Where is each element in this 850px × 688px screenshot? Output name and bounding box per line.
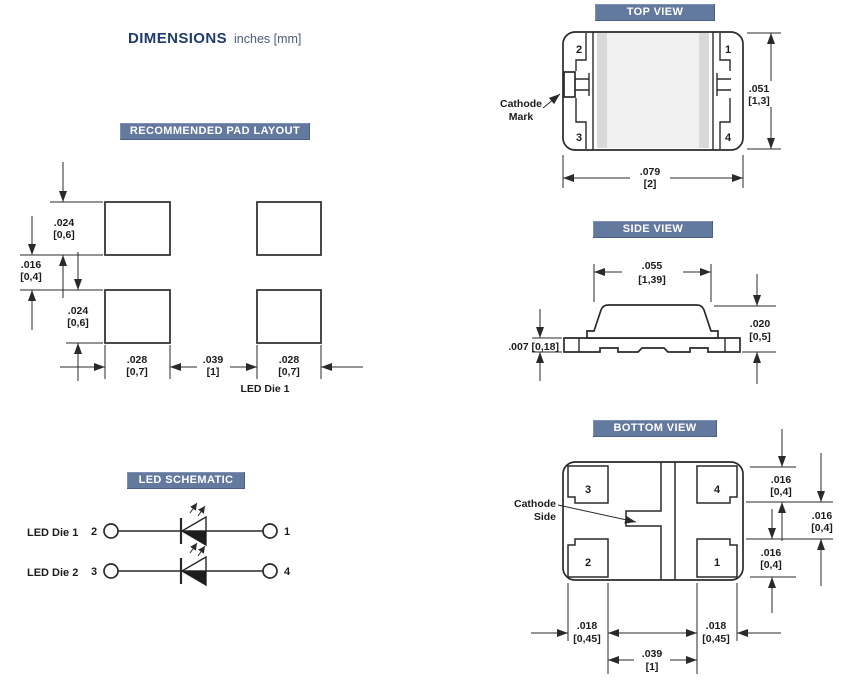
schematic-row-die1: LED Die 1 2 1: [27, 503, 290, 545]
bottom-view-pin-2: 2: [585, 557, 591, 569]
schematic-die2-left-pin: 3: [91, 566, 97, 578]
bottom-view-pin-1: 1: [714, 557, 720, 569]
cathode-mark-label-line2: Mark: [509, 111, 534, 123]
dim-side-body-height-mm: [0,5]: [749, 331, 771, 343]
schematic-die2-right-terminal: [263, 564, 277, 578]
dim-bottom-pad-h-top-in: .016: [771, 474, 792, 486]
top-view-pin-3: 3: [576, 132, 582, 144]
cathode-side-label-line1: Cathode: [514, 498, 556, 510]
bottom-view-drawing: 3 4 2 1 Cathode Side: [514, 429, 833, 674]
dim-pad-height-bottom-in: .024: [68, 305, 89, 317]
dim-pad-width-left-mm: [0,7]: [126, 366, 148, 378]
dim-top-view-height-in: .051: [749, 83, 770, 95]
pad-layout-pads: [105, 202, 321, 343]
dim-bottom-pad-w-right-in: .018: [706, 620, 727, 632]
schematic-row-die2: LED Die 2 3 4: [27, 543, 291, 585]
top-view-pin-1: 1: [725, 44, 731, 56]
dim-row-gap-in: .016: [21, 259, 42, 271]
cathode-side-label-line2: Side: [534, 511, 556, 523]
dim-bottom-pad-w-right-mm: [0,45]: [702, 633, 729, 645]
drawing-canvas: .024 [0,6] .016 [0,4] .024 [0,6] .028 [0…: [0, 0, 850, 688]
dim-bottom-center-gap-mm: [1]: [646, 661, 659, 673]
bottom-view-pin-4: 4: [714, 484, 721, 496]
badge-recommended-pad-layout: RECOMMENDED PAD LAYOUT: [120, 123, 310, 140]
schematic-die2-left-terminal: [104, 564, 118, 578]
top-view-body-shading: [593, 32, 713, 150]
dim-side-top-width-in: .055: [642, 260, 663, 272]
dim-pad-height-bottom-mm: [0,6]: [67, 317, 89, 329]
dim-col-gap-in: .039: [203, 354, 224, 366]
dim-top-view-width-mm: [2]: [644, 178, 657, 190]
schematic-die2-right-pin: 4: [284, 566, 291, 578]
dim-bottom-pad-gap-mm: [0,4]: [811, 522, 833, 534]
pad-layout-note: LED Die 1: [240, 383, 289, 395]
dim-bottom-center-gap-in: .039: [642, 648, 663, 660]
top-view-drawing: 2 1 3 4 Cathode Mark .051 [1,3] .079: [500, 32, 781, 190]
side-view-dome: [587, 305, 718, 338]
pad-layout-dimension-lines: [20, 162, 363, 381]
datasheet-dimensions-page: DIMENSIONSinches [mm]: [0, 0, 850, 688]
dim-bottom-pad-w-left-mm: [0,45]: [573, 633, 600, 645]
schematic-die2-label: LED Die 2: [27, 567, 78, 579]
led-schematic-drawing: LED Die 1 2 1 LED Die 2 3: [27, 503, 291, 585]
schematic-die1-left-terminal: [104, 524, 118, 538]
schematic-die1-left-pin: 2: [91, 526, 97, 538]
dim-pad-height-top-mm: [0,6]: [53, 229, 75, 241]
badge-top-view: TOP VIEW: [595, 4, 715, 21]
top-view-pin-2: 2: [576, 44, 582, 56]
bottom-view-pin-3: 3: [585, 484, 591, 496]
led-diode-icon: [181, 503, 206, 545]
dim-pad-width-left-in: .028: [127, 354, 148, 366]
led-diode-icon: [181, 543, 206, 585]
top-view-pin-4: 4: [725, 132, 732, 144]
cathode-mark-notch: [564, 72, 575, 97]
schematic-die1-right-terminal: [263, 524, 277, 538]
dim-pad-height-top-in: .024: [54, 217, 75, 229]
dim-row-gap-mm: [0,4]: [20, 271, 42, 283]
dim-pad-width-right-mm: [0,7]: [278, 366, 300, 378]
dim-side-base-thickness: .007 [0,18]: [508, 341, 559, 353]
dim-bottom-pad-gap-in: .016: [812, 510, 833, 522]
dim-bottom-pad-h-top-mm: [0,4]: [770, 486, 792, 498]
badge-bottom-view: BOTTOM VIEW: [593, 420, 717, 437]
pad-layout-drawing: .024 [0,6] .016 [0,4] .024 [0,6] .028 [0…: [20, 162, 363, 395]
side-view-base: [564, 338, 740, 352]
dim-bottom-pad-w-left-in: .018: [577, 620, 598, 632]
dim-bottom-pad-h-bot-mm: [0,4]: [760, 559, 782, 571]
badge-led-schematic: LED SCHEMATIC: [127, 472, 245, 489]
dim-top-view-height-mm: [1,3]: [748, 95, 770, 107]
dim-top-view-width-in: .079: [640, 166, 661, 178]
dim-pad-width-right-in: .028: [279, 354, 300, 366]
badge-side-view: SIDE VIEW: [593, 221, 713, 238]
cathode-mark-callout: Cathode Mark: [500, 94, 560, 123]
schematic-die1-label: LED Die 1: [27, 527, 78, 539]
dim-col-gap-mm: [1]: [207, 366, 220, 378]
side-view-drawing: .055 [1,39] .007 [0,18] .020 [0,5]: [508, 260, 776, 384]
dim-side-body-height-in: .020: [750, 318, 771, 330]
schematic-die1-right-pin: 1: [284, 526, 290, 538]
dim-bottom-pad-h-bot-in: .016: [761, 547, 782, 559]
cathode-mark-label-line1: Cathode: [500, 98, 542, 110]
dim-side-top-width-mm: [1,39]: [638, 274, 665, 286]
